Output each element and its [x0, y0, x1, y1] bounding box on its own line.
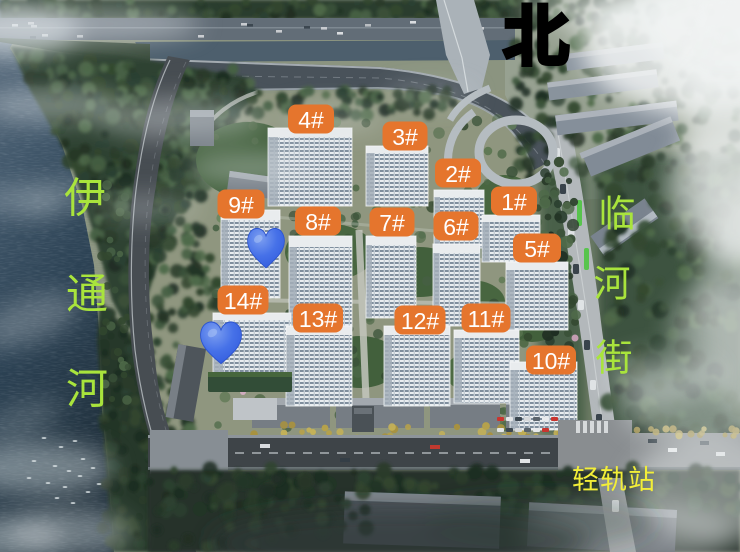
svg-text:河: 河: [594, 264, 631, 305]
svg-text:伊: 伊: [64, 175, 106, 222]
svg-text:6#: 6#: [443, 214, 469, 240]
svg-text:通: 通: [66, 271, 108, 318]
svg-text:街: 街: [596, 338, 633, 379]
svg-text:轻轨站: 轻轨站: [572, 465, 656, 495]
svg-text:14#: 14#: [224, 288, 263, 314]
svg-text:9#: 9#: [228, 192, 254, 218]
svg-text:12#: 12#: [401, 308, 440, 334]
svg-text:10#: 10#: [532, 348, 571, 374]
svg-text:1#: 1#: [501, 189, 527, 215]
svg-text:8#: 8#: [305, 209, 331, 235]
svg-text:11#: 11#: [468, 306, 505, 332]
svg-text:北: 北: [503, 2, 568, 74]
svg-text:河: 河: [66, 366, 108, 413]
svg-text:临: 临: [599, 194, 636, 235]
svg-text:7#: 7#: [379, 210, 405, 236]
svg-text:13#: 13#: [299, 306, 338, 332]
svg-text:3#: 3#: [392, 124, 418, 150]
svg-text:5#: 5#: [524, 236, 550, 262]
svg-text:4#: 4#: [298, 107, 324, 133]
svg-text:2#: 2#: [445, 161, 471, 187]
